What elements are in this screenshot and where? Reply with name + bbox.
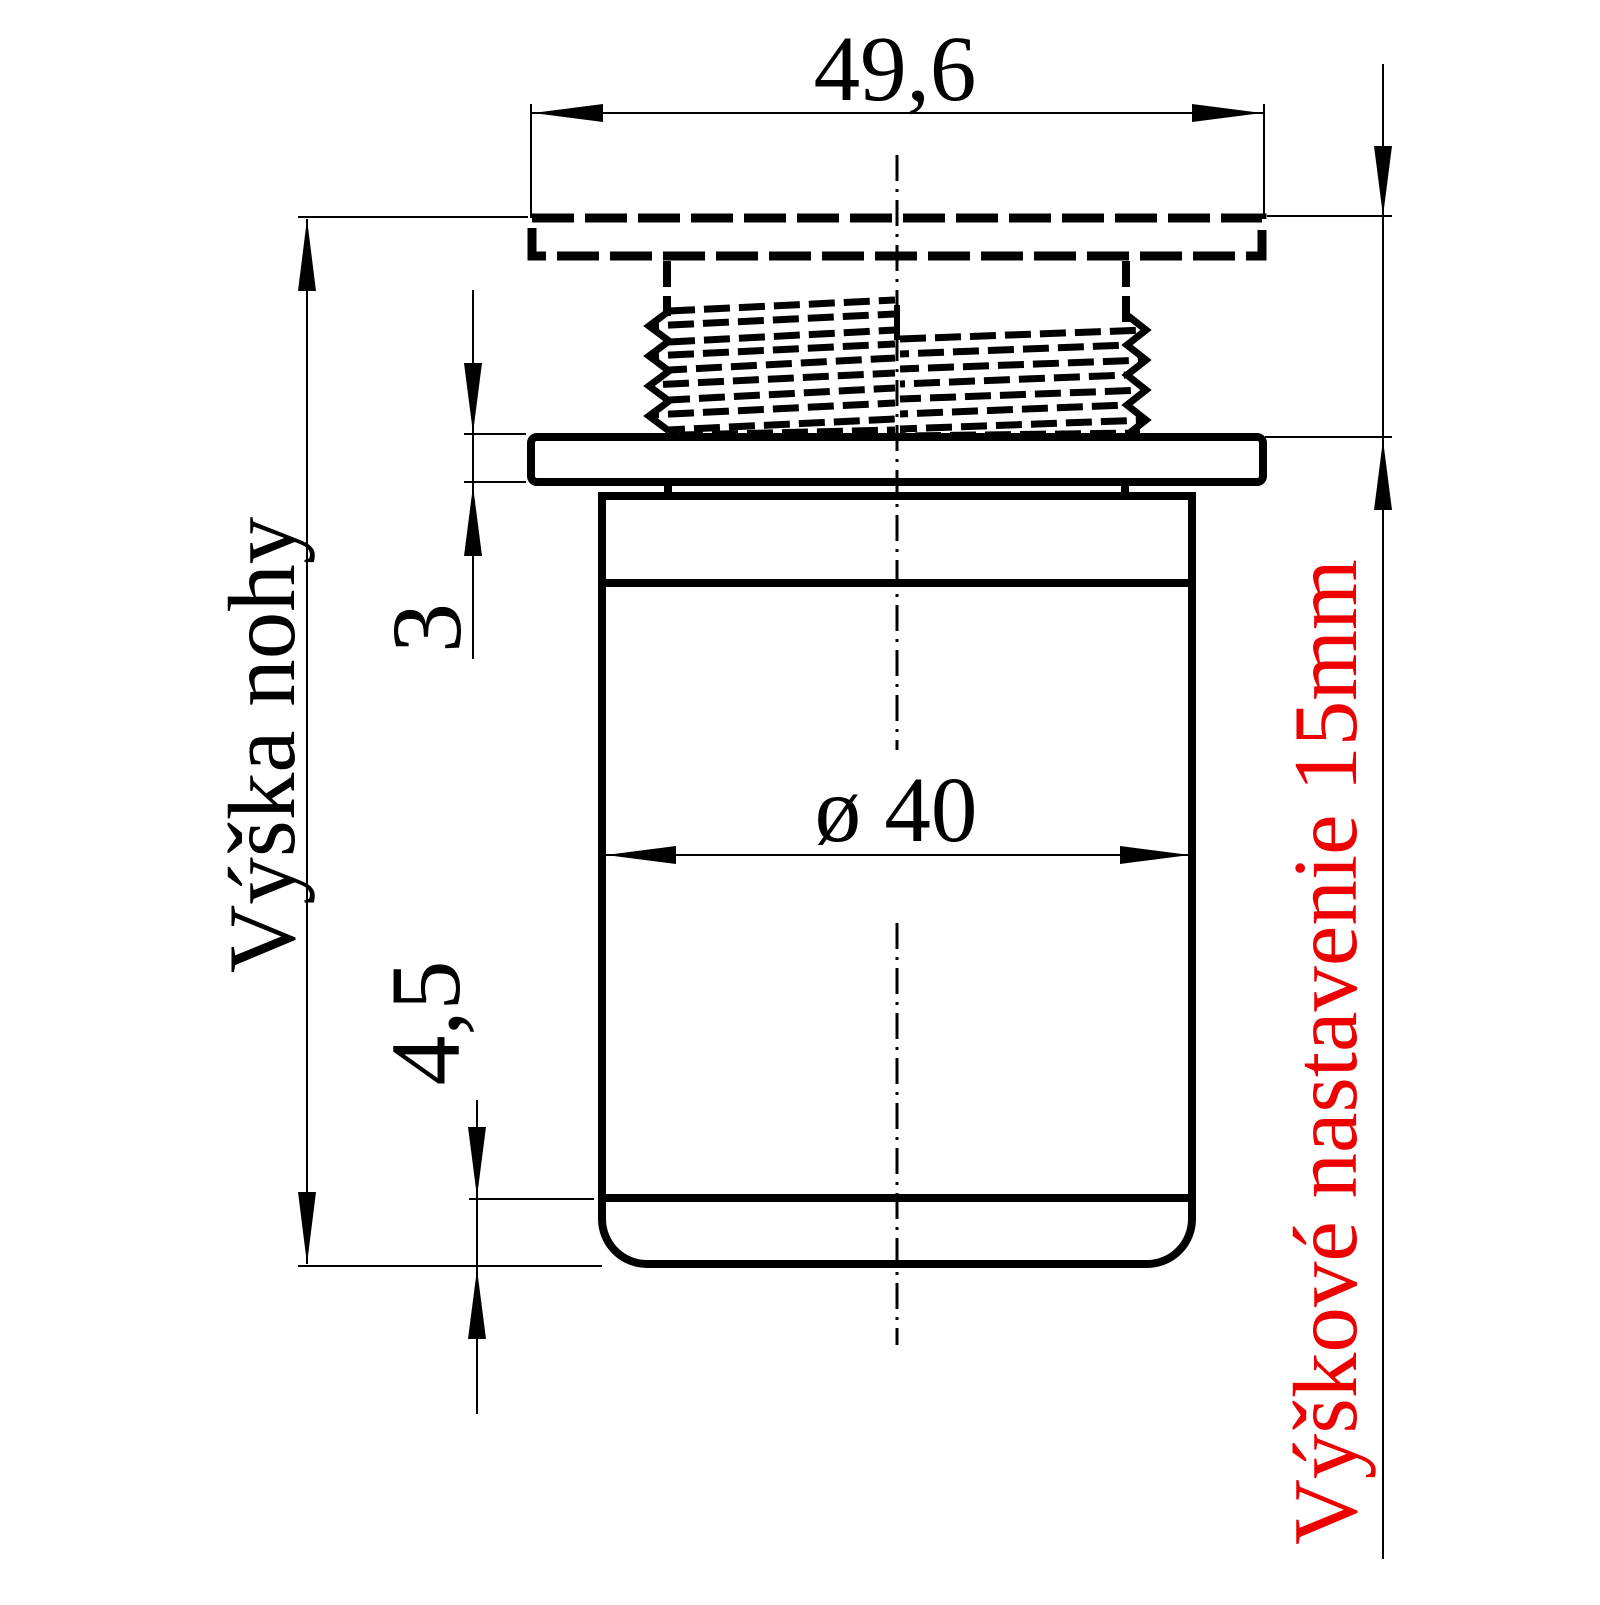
svg-text:49,6: 49,6: [814, 18, 977, 121]
svg-text:Výškové nastavenie 15mm: Výškové nastavenie 15mm: [1275, 559, 1376, 1545]
svg-text:3: 3: [371, 603, 482, 653]
svg-text:4,5: 4,5: [370, 961, 481, 1086]
svg-text:ø 40: ø 40: [815, 759, 978, 862]
svg-text:Výška nohy: Výška nohy: [209, 516, 315, 973]
